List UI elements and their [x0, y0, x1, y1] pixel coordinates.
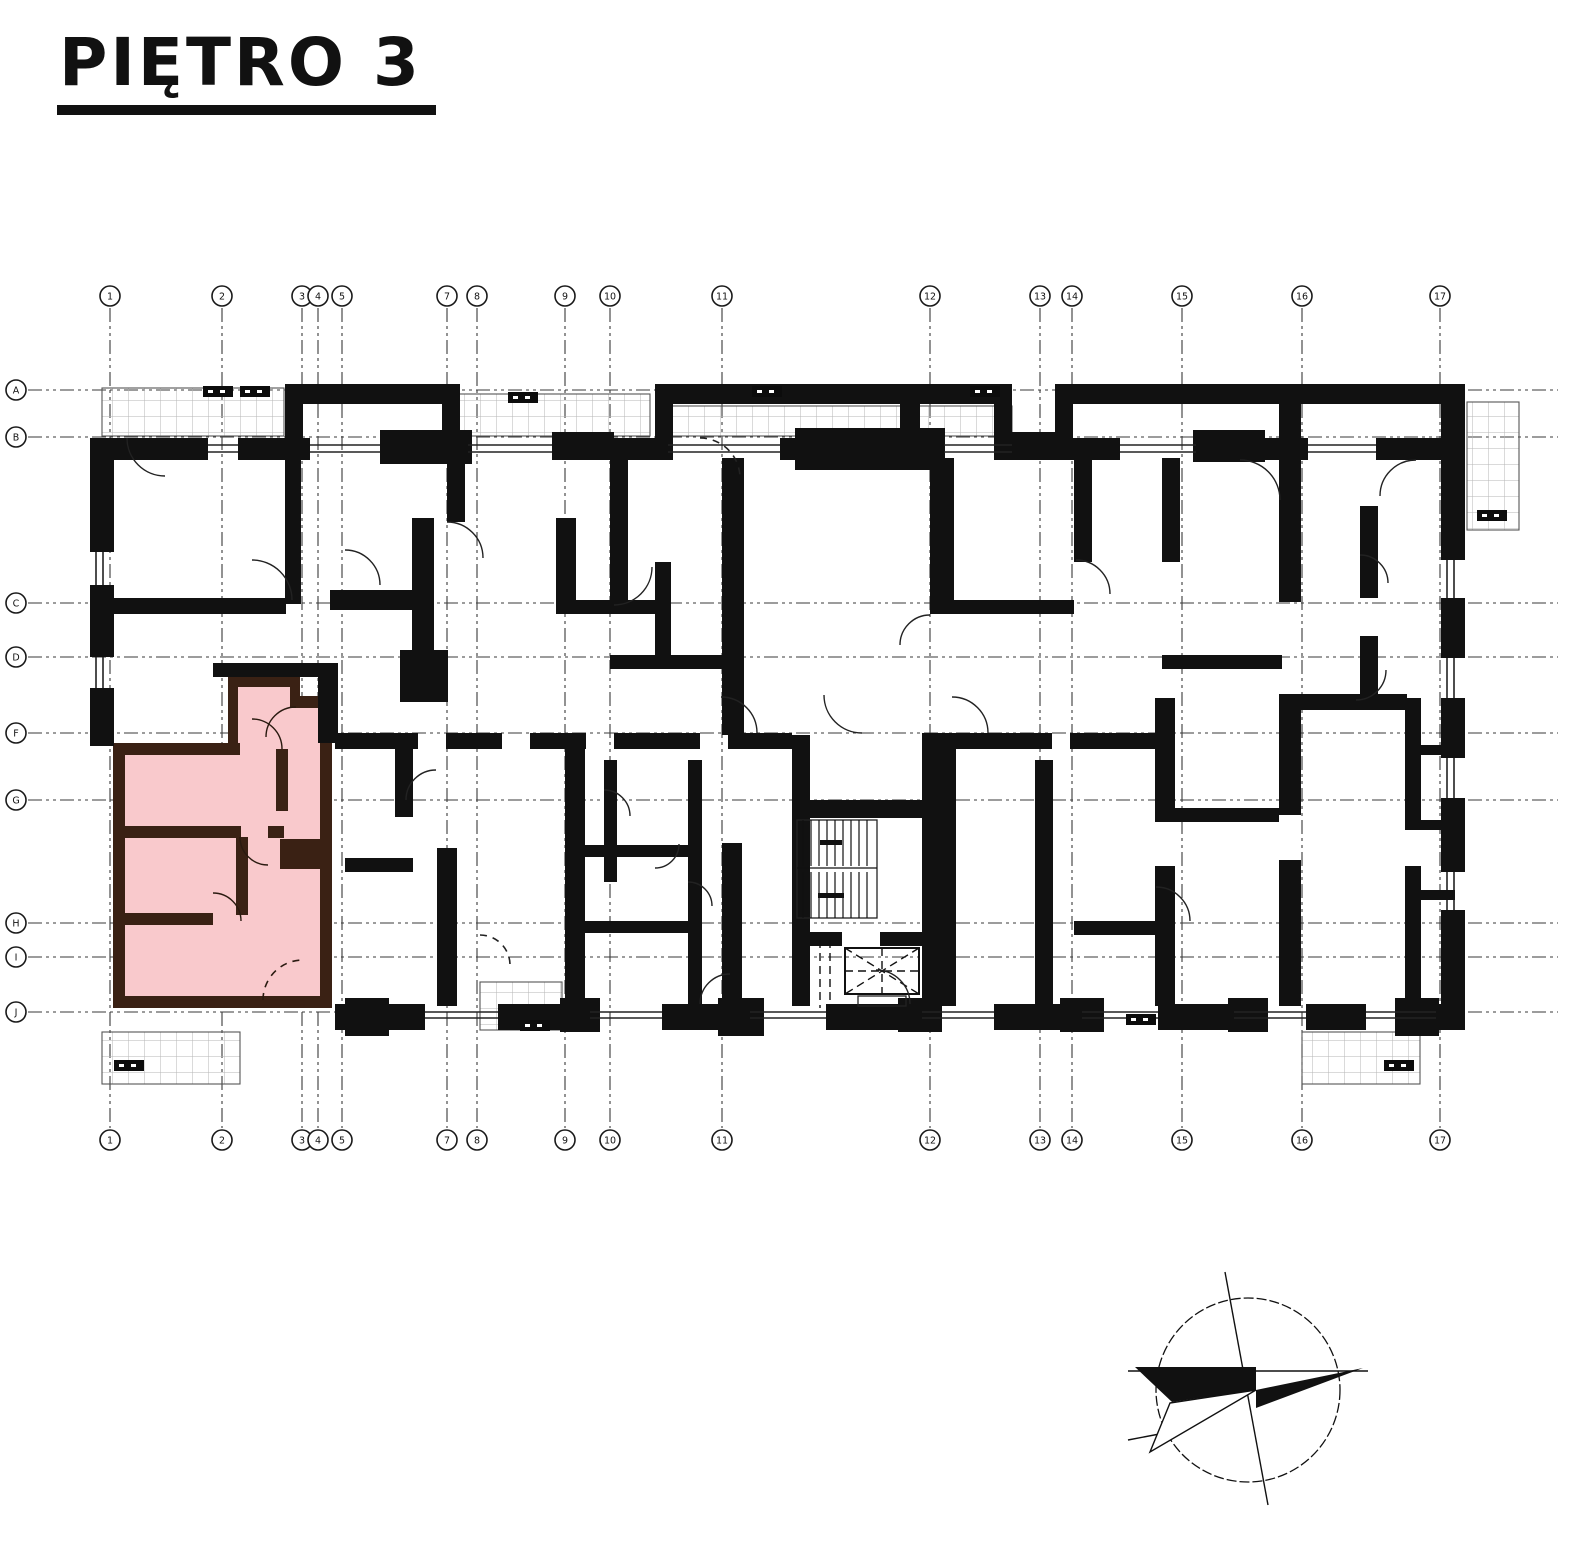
grid-column-bubble-bottom: 8: [467, 1130, 487, 1150]
svg-text:G: G: [12, 796, 19, 807]
svg-text:8: 8: [474, 1136, 480, 1147]
grid-column-bubble-top: 1: [100, 286, 120, 306]
grid-column-bubble-bottom: 9: [555, 1130, 575, 1150]
grid-column-bubble-top: 14: [1062, 286, 1082, 306]
svg-text:14: 14: [1066, 1136, 1078, 1147]
svg-text:10: 10: [604, 292, 616, 303]
svg-text:17: 17: [1434, 292, 1446, 303]
svg-text:J: J: [14, 1008, 18, 1019]
grid-row-bubble: B: [6, 427, 26, 447]
svg-text:5: 5: [339, 292, 345, 303]
svg-text:9: 9: [562, 292, 568, 303]
svg-text:17: 17: [1434, 1136, 1446, 1147]
grid-column-bubble-top: 16: [1292, 286, 1312, 306]
grid-row-bubble: H: [6, 913, 26, 933]
window-tag: [240, 386, 270, 397]
svg-text:4: 4: [315, 1136, 321, 1147]
svg-text:15: 15: [1176, 292, 1188, 303]
svg-text:A: A: [13, 386, 20, 397]
svg-text:1: 1: [107, 1136, 113, 1147]
svg-text:8: 8: [474, 292, 480, 303]
svg-text:10: 10: [604, 1136, 616, 1147]
svg-text:15: 15: [1176, 1136, 1188, 1147]
svg-text:16: 16: [1296, 1136, 1308, 1147]
grid-column-bubble-top: 10: [600, 286, 620, 306]
compass-needle-east: [1256, 1368, 1363, 1408]
grid-column-bubble-bottom: 17: [1430, 1130, 1450, 1150]
grid-column-bubble-bottom: 10: [600, 1130, 620, 1150]
grid-column-bubble-top: 13: [1030, 286, 1050, 306]
svg-text:14: 14: [1066, 292, 1078, 303]
window-tag: [970, 386, 1000, 397]
grid-column-bubble-top: 15: [1172, 286, 1192, 306]
grid-column-bubble-bottom: 5: [332, 1130, 352, 1150]
window-tag: [1126, 1014, 1156, 1025]
grid-row-bubble: D: [6, 647, 26, 667]
compass-needle-south: [1150, 1390, 1256, 1452]
grid-column-bubble-bottom: 13: [1030, 1130, 1050, 1150]
grid-column-bubble-bottom: 11: [712, 1130, 732, 1150]
svg-text:11: 11: [716, 292, 728, 303]
svg-text:13: 13: [1034, 292, 1046, 303]
grid-column-bubble-bottom: 16: [1292, 1130, 1312, 1150]
grid-column-bubble-top: 9: [555, 286, 575, 306]
grid-column-bubble-top: 7: [437, 286, 457, 306]
svg-text:5: 5: [339, 1136, 345, 1147]
grid-column-bubble-top: 12: [920, 286, 940, 306]
svg-text:2: 2: [219, 292, 225, 303]
window-tag: [203, 386, 233, 397]
svg-text:2: 2: [219, 1136, 225, 1147]
svg-text:B: B: [13, 433, 20, 444]
grid-column-bubble-top: 5: [332, 286, 352, 306]
svg-text:7: 7: [444, 292, 450, 303]
window-tag: [508, 392, 538, 403]
grid-row-bubble: C: [6, 593, 26, 613]
grid-column-bubble-bottom: 15: [1172, 1130, 1192, 1150]
svg-text:3: 3: [299, 1136, 305, 1147]
elevator: [820, 940, 919, 1008]
svg-text:4: 4: [315, 292, 321, 303]
svg-text:9: 9: [562, 1136, 568, 1147]
window-tag: [520, 1020, 550, 1031]
grid-row-bubble: F: [6, 723, 26, 743]
window-tag: [1477, 510, 1507, 521]
window-tag: [1384, 1060, 1414, 1071]
svg-text:16: 16: [1296, 292, 1308, 303]
svg-text:I: I: [15, 953, 18, 964]
svg-text:12: 12: [924, 1136, 936, 1147]
svg-text:F: F: [13, 729, 18, 740]
grid-column-bubble-top: 4: [308, 286, 328, 306]
balcony: [450, 394, 650, 436]
grid-column-bubble-top: 17: [1430, 286, 1450, 306]
svg-text:3: 3: [299, 292, 305, 303]
grid-column-bubble-top: 8: [467, 286, 487, 306]
balcony: [102, 1032, 240, 1084]
svg-text:H: H: [12, 919, 19, 930]
svg-text:1: 1: [107, 292, 113, 303]
svg-text:C: C: [13, 599, 20, 610]
floor-plan-canvas: 1122334455778899101011111212131314141515…: [0, 0, 1579, 1559]
svg-text:D: D: [12, 653, 19, 664]
grid-column-bubble-bottom: 7: [437, 1130, 457, 1150]
svg-text:13: 13: [1034, 1136, 1046, 1147]
grid-column-bubble-bottom: 1: [100, 1130, 120, 1150]
svg-text:11: 11: [716, 1136, 728, 1147]
window-tag: [114, 1060, 144, 1071]
grid-column-bubble-bottom: 14: [1062, 1130, 1082, 1150]
grid-row-bubble: J: [6, 1002, 26, 1022]
balcony: [1302, 1032, 1420, 1084]
north-arrow-compass: [1128, 1272, 1368, 1505]
window-tag: [752, 386, 782, 397]
grid-column-bubble-bottom: 12: [920, 1130, 940, 1150]
grid-column-bubble-top: 11: [712, 286, 732, 306]
grid-column-bubble-bottom: 2: [212, 1130, 232, 1150]
grid-row-bubble: I: [6, 947, 26, 967]
grid-column-bubble-top: 2: [212, 286, 232, 306]
svg-text:12: 12: [924, 292, 936, 303]
svg-text:7: 7: [444, 1136, 450, 1147]
grid-row-bubble: A: [6, 380, 26, 400]
grid-row-bubble: G: [6, 790, 26, 810]
grid-column-bubble-bottom: 4: [308, 1130, 328, 1150]
